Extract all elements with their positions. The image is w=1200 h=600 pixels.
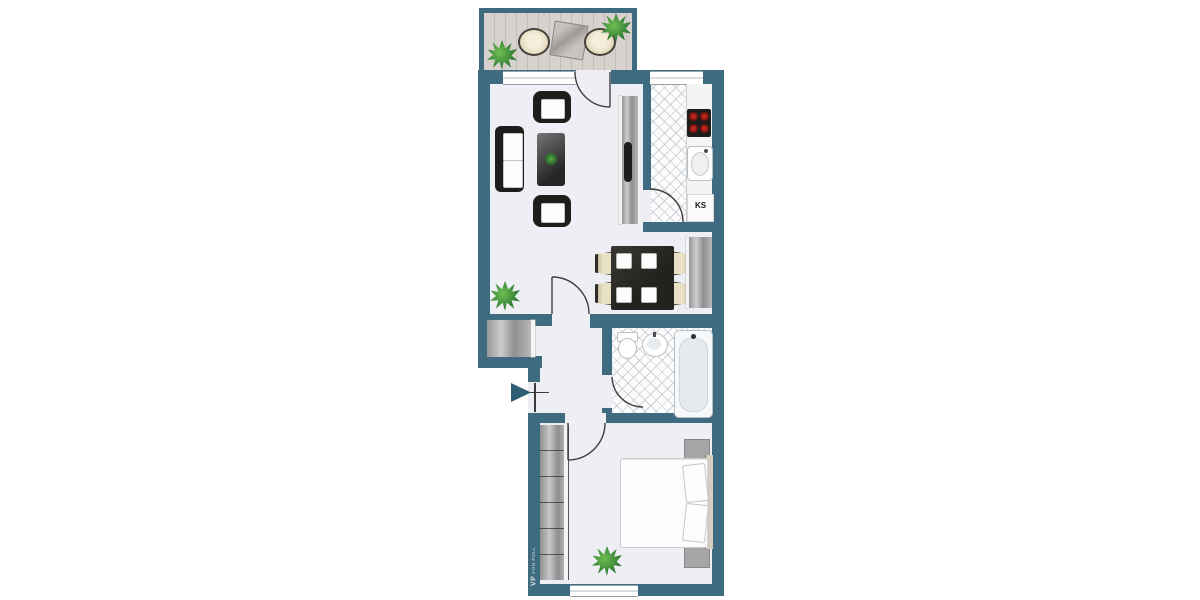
bathtub-basin xyxy=(679,338,708,412)
armchair-bottom-cushion xyxy=(541,203,565,223)
balcony-chair-left xyxy=(518,28,550,56)
balcony-table xyxy=(549,21,588,61)
sofa-cushion xyxy=(503,133,523,161)
wall-right xyxy=(712,70,724,596)
kitchen-sink xyxy=(687,146,713,181)
balcony-rail-left xyxy=(479,8,484,70)
kitchen-sink-basin xyxy=(691,152,709,176)
dining-seat xyxy=(641,253,657,269)
bed-pillow xyxy=(682,503,709,543)
bedroom-window xyxy=(570,585,638,597)
balcony-rail-top xyxy=(479,8,637,13)
wall-kitchen-left xyxy=(643,84,651,190)
bathroom-sink-basin xyxy=(647,338,661,350)
sofa-cushion xyxy=(503,160,523,188)
nightstand-bottom xyxy=(684,547,710,568)
refrigerator-label: KS xyxy=(688,195,713,217)
wall-niche-bottom xyxy=(478,356,542,368)
floor-plan-canvas: KS VP VON POLL xyxy=(0,0,1200,600)
bed-pillow xyxy=(682,463,709,503)
hallway-wardrobe xyxy=(487,320,531,357)
wall-bathroom-top xyxy=(590,314,724,328)
stove-burner-icon xyxy=(689,112,698,121)
wall-kitchen-bottom xyxy=(643,222,724,232)
dining-seat xyxy=(641,287,657,303)
kitchen-window xyxy=(650,71,703,85)
brand-watermark: VP VON POLL xyxy=(528,538,540,586)
dining-sideboard xyxy=(689,237,712,308)
faucet-icon xyxy=(691,334,696,339)
stove-burner-icon xyxy=(700,112,709,121)
bedroom-door-opening xyxy=(565,413,606,423)
bathroom-door-opening xyxy=(602,375,612,408)
brand-watermark-name: VON POLL xyxy=(532,546,537,573)
balcony-rail-right xyxy=(632,8,637,70)
living-room-window xyxy=(503,71,576,85)
entrance-door-opening xyxy=(528,382,540,413)
bathtub xyxy=(674,330,713,418)
stove xyxy=(687,109,711,137)
refrigerator: KS xyxy=(687,194,714,222)
stove-burner-icon xyxy=(700,124,709,133)
dining-seat xyxy=(616,287,632,303)
toilet-bowl xyxy=(618,338,637,359)
brand-watermark-initials: VP xyxy=(531,576,538,586)
tv xyxy=(624,142,632,182)
dining-seat xyxy=(616,253,632,269)
bathroom-sink xyxy=(642,333,668,357)
bedroom-wardrobe-front xyxy=(564,425,568,580)
coffee-table-plant-icon xyxy=(545,153,557,165)
stove-burner-icon xyxy=(689,124,698,133)
hallway-floor xyxy=(540,314,602,423)
faucet-icon xyxy=(704,149,708,153)
balcony-door-opening xyxy=(576,70,611,84)
armchair-top-cushion xyxy=(541,99,565,119)
bedroom-wardrobe xyxy=(540,425,564,580)
faucet-icon xyxy=(653,332,656,337)
hallway-wardrobe-front xyxy=(531,320,535,357)
